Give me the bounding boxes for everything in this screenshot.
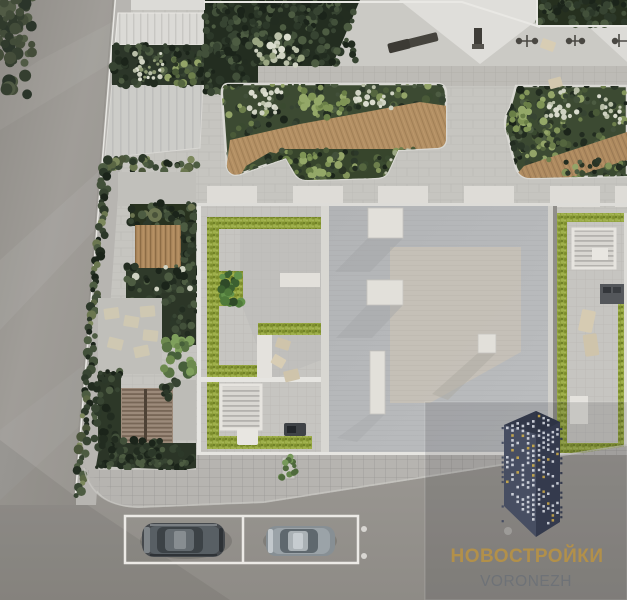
- svg-text:НОВОСТРОЙКИ: НОВОСТРОЙКИ: [451, 545, 604, 567]
- svg-text:VORONEZH: VORONEZH: [480, 573, 572, 590]
